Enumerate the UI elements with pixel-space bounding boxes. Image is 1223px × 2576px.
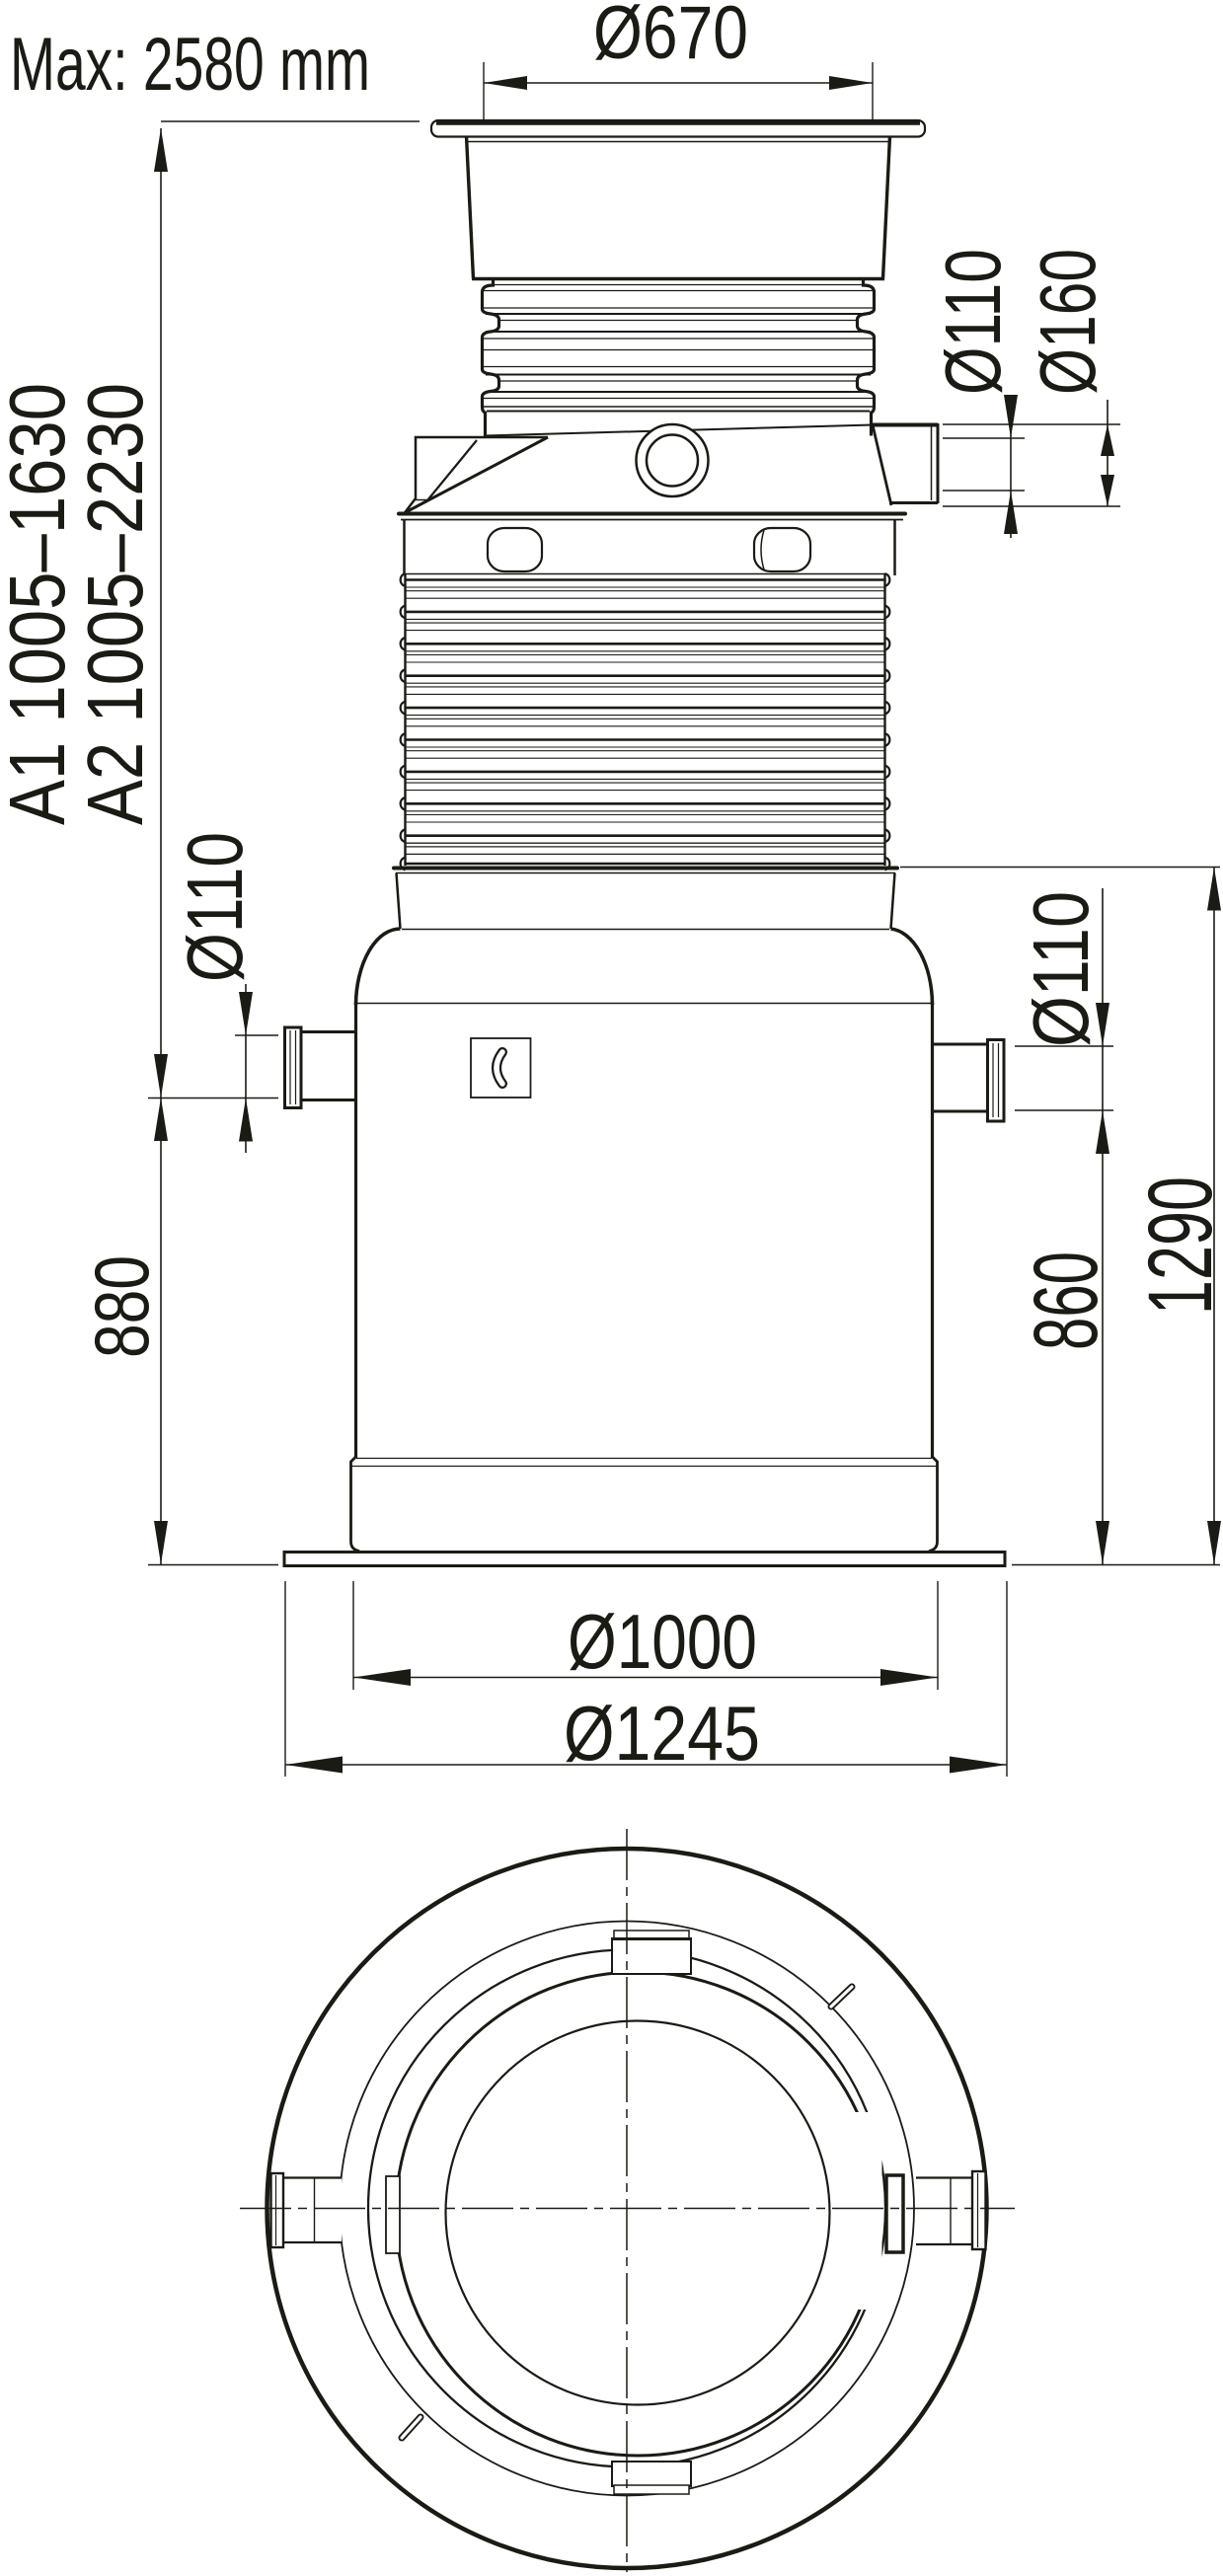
svg-text:Ø1245: Ø1245 [564, 1690, 760, 1777]
svg-text:A1 1005–1630: A1 1005–1630 [0, 383, 81, 825]
svg-text:Ø110: Ø110 [1017, 891, 1105, 1047]
svg-text:Ø110: Ø110 [929, 249, 1017, 395]
svg-text:Ø670: Ø670 [593, 0, 748, 75]
svg-text:Ø1000: Ø1000 [568, 1598, 757, 1685]
svg-text:880: 880 [78, 1255, 165, 1358]
svg-text:1290: 1290 [1130, 1176, 1223, 1315]
svg-text:Ø110: Ø110 [171, 832, 259, 982]
svg-text:A2 1005–2230: A2 1005–2230 [71, 383, 159, 825]
svg-text:Max: 2580 mm: Max: 2580 mm [10, 23, 370, 107]
svg-text:860: 860 [1016, 1251, 1116, 1350]
svg-text:Ø160: Ø160 [1024, 249, 1111, 395]
